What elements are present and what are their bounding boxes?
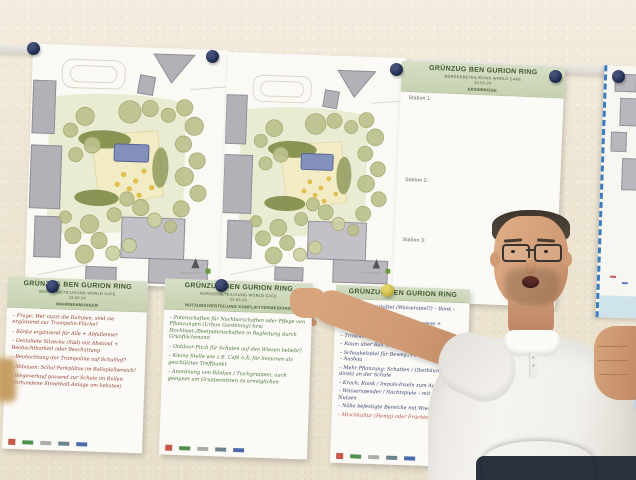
eye [544,250,548,253]
magnet-pin [390,63,403,76]
station-1-label: Station 1: [408,95,431,102]
foreground-blur-object [0,358,16,402]
pointing-hand [290,288,326,318]
magnet-pin [215,279,228,292]
logo-gray [197,447,208,451]
workshop-photo: GRÜNZUG BEN GURION RING BÜRGERBETEILIGUN… [0,0,636,480]
logo-slate [215,447,226,451]
logo-green [350,454,361,458]
logo-slate [58,441,69,445]
polo-button [532,356,535,359]
logo-slate [386,456,397,460]
logo-blue [404,456,415,460]
logo-blue [233,448,244,452]
eye [511,250,515,253]
logo-red [165,445,172,451]
logo-red [336,453,343,459]
magnet-pin-olive [381,284,394,297]
site-plan-right-art [220,52,406,296]
magnet-pin [612,70,625,83]
logo-green [179,446,190,450]
results-poster-header: GRÜNZUG BEN GURION RING BÜRGERBETEILIGUN… [401,61,565,98]
station-3-label: Station 3: [402,237,425,244]
presenter-left-hand [594,326,636,400]
site-plan-left-art [25,44,229,289]
flipchart-a-header: GRÜNZUG BEN GURION RING BÜRGERBETEILIGUN… [7,277,148,313]
ear [490,252,500,267]
station-2-label: Station 2: [405,177,428,184]
logo-green [22,440,33,444]
note-item: – Gestaltete Sitzecke (Süd) mit Abstand … [11,338,140,355]
note-item: – Patenschaften für Nachbarschaften oder… [169,314,307,345]
open-mouth [522,276,539,288]
logo-gray [40,441,51,445]
magnet-pin [206,50,219,63]
handwritten-notes: – Frage: Wer nutzt die Rampen, sind sie … [2,307,146,441]
note-item: – Anordnung von Bänken / Tischgruppen, a… [168,369,305,387]
note-item: – Kleine Stelle wie z.B. Café o.Ä. für S… [168,353,305,371]
magnet-pin [27,42,40,55]
city-map [596,65,636,318]
nose [526,258,534,272]
flipchart-wahrnehmungen: GRÜNZUG BEN GURION RING BÜRGERBETEILIGUN… [2,277,148,454]
map-water-area [599,295,636,318]
logo-blue [76,442,87,446]
magnet-pin [549,70,562,83]
site-plan-right [220,52,406,296]
polo-button [532,364,535,367]
site-plan-left [25,44,229,289]
magnet-pin [46,280,59,293]
note-item: – Frage: Wer nutzt die Rampen, sind sie … [12,312,141,329]
note-item: – Wegeverlauf passend zur Schule im Roll… [10,373,139,390]
handwritten-notes: – Patenschaften für Nachbarschaften oder… [159,309,312,447]
logo-red [8,439,15,445]
ear [562,252,572,267]
audience-head [482,441,594,480]
logo-gray [368,455,379,459]
